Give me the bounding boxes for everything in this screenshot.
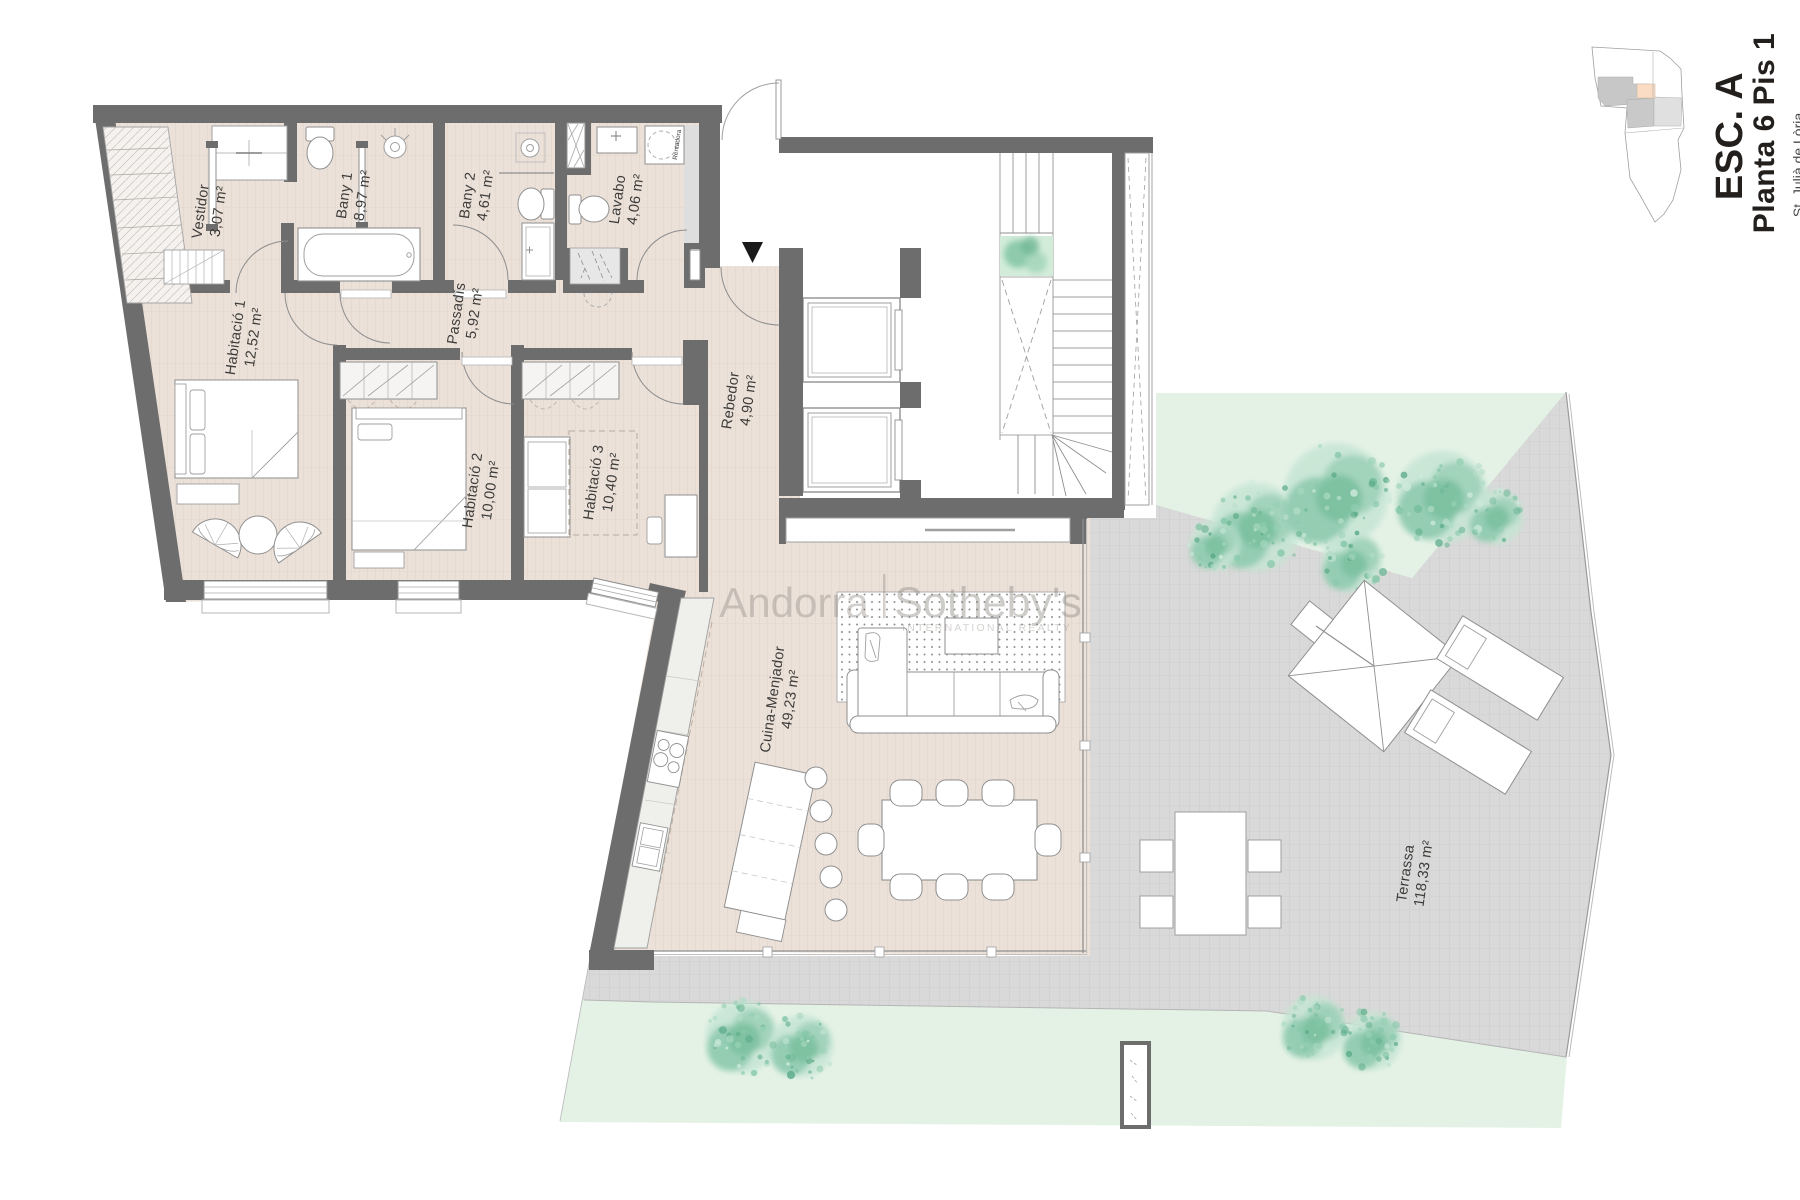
svg-text:St. Julià de Lòria: St. Julià de Lòria — [1790, 113, 1800, 217]
svg-text:ESC. A: ESC. A — [1709, 72, 1751, 200]
svg-text:Planta 6 Pis 1: Planta 6 Pis 1 — [1748, 33, 1781, 233]
svg-text:Andorra: Andorra — [719, 579, 869, 626]
svg-text:Sotheby's: Sotheby's — [894, 579, 1082, 627]
svg-text:INTERNATIONAL REALTY: INTERNATIONAL REALTY — [902, 622, 1072, 634]
